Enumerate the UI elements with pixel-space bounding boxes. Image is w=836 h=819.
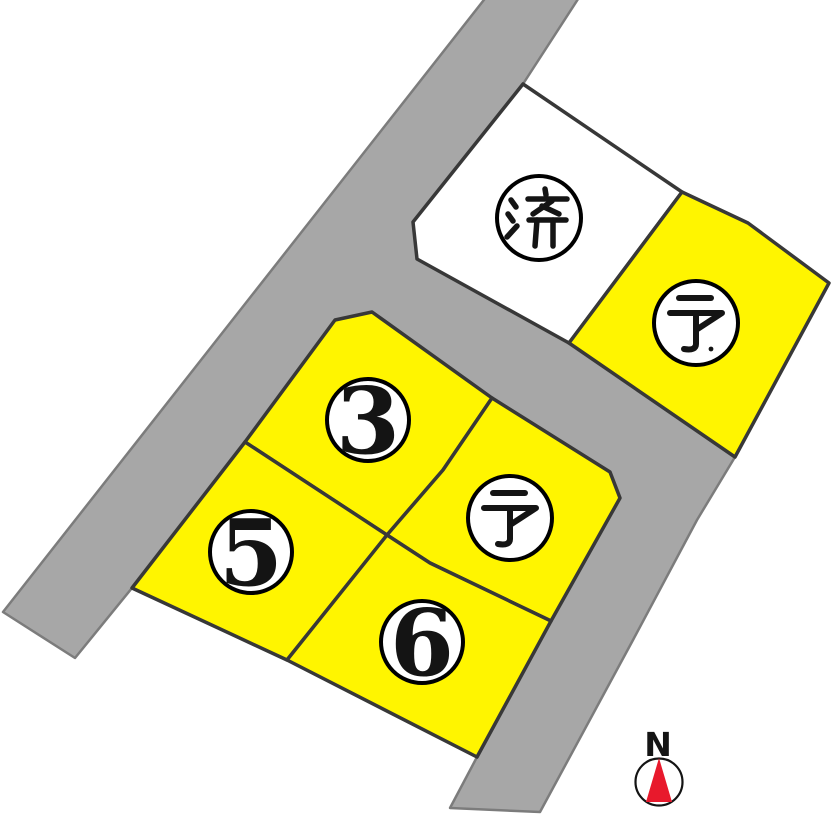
site-plan-map: 3 5 6 N [0,0,836,819]
kanji-stroke [545,189,546,195]
badge-label: 5 [219,499,283,607]
lot-status-badge-3: 3 [327,367,409,475]
north-compass: N [636,725,683,806]
lot-status-badge-reserved-top [654,281,738,365]
badge-label: 3 [336,367,400,475]
lot-status-badge-6: 6 [381,589,463,697]
lot-status-badge-reserved-mid [468,476,552,560]
north-arrow-icon [646,758,672,802]
lot-status-badge-5: 5 [210,499,292,607]
lot-status-badge-sold [497,176,581,260]
kanji-stroke [535,220,537,246]
site-plan: 3 5 6 N [0,0,836,819]
stray-dot-mark [709,347,714,352]
badge-label: 6 [390,589,454,697]
